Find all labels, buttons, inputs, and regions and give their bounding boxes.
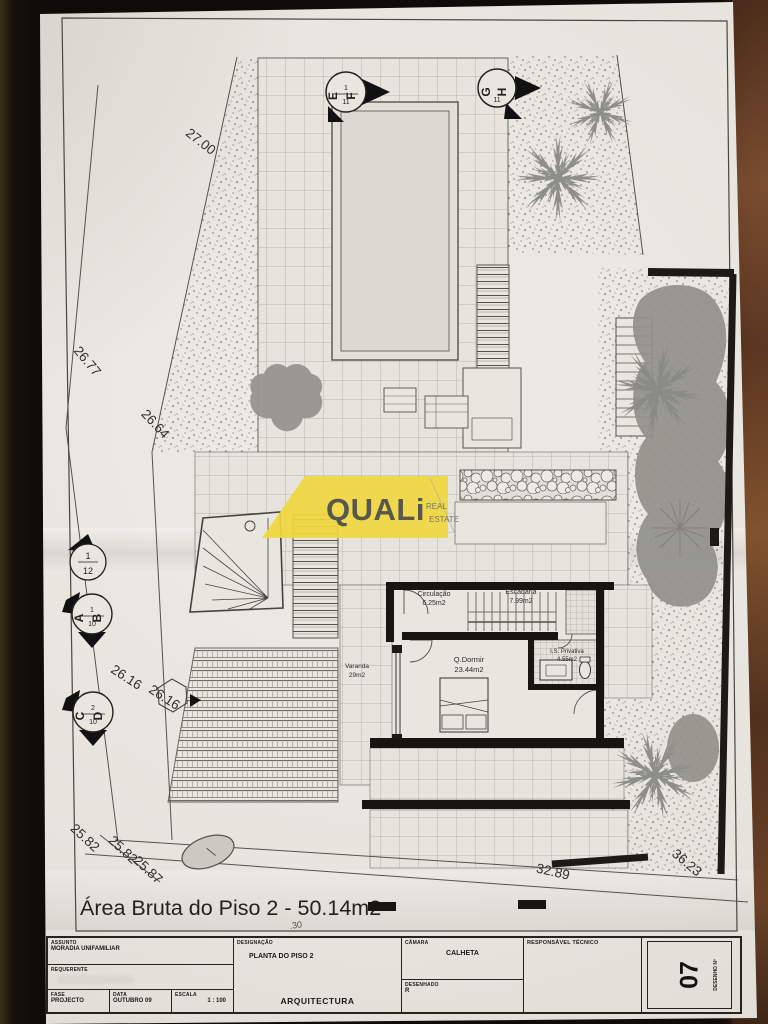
responsavel-cell: RESPONSÁVEL TÉCNICO — [524, 938, 642, 1012]
requerente-label: REQUERENTE — [51, 967, 230, 973]
bottom-annotations: Área Bruta do Piso 2 - 50.14m2 .30 — [80, 895, 546, 931]
quali-logo-sub: ESTATE — [429, 515, 459, 524]
pool-water — [341, 111, 449, 351]
gross-area-note: Área Bruta do Piso 2 - 50.14m2 — [80, 895, 381, 920]
data-cell: DATA OUTUBRO 09 — [110, 990, 172, 1012]
svg-text:E: E — [326, 92, 340, 100]
dimension: 26.16 — [108, 662, 145, 693]
quali-logo-sub: REAL — [426, 502, 447, 511]
room-area: 29m2 — [349, 672, 366, 679]
toilet — [580, 662, 591, 679]
svg-text:1: 1 — [344, 85, 348, 92]
svg-text:11: 11 — [342, 99, 349, 106]
legend-bar — [518, 900, 546, 909]
designacao-value: PLANTA DO PISO 2 — [249, 953, 398, 960]
sink — [540, 660, 572, 680]
escala-cell: ESCALA 1 : 100 — [172, 990, 233, 1012]
svg-text:1: 1 — [90, 607, 94, 614]
quali-logo-text: QUALi — [326, 492, 425, 527]
assunto-cell: ASSUNTO MORADIA UNIFAMILIAR — [48, 938, 233, 965]
svg-text:C: C — [73, 711, 87, 720]
photographed-floor-plan: { "plan": { "area_note": "Área Bruta do … — [0, 0, 768, 1024]
svg-text:1: 1 — [85, 551, 90, 561]
requerente-cell: REQUERENTE — [48, 965, 233, 990]
arquitectura-label: ARQUITECTURA — [234, 996, 401, 1006]
oval-planter — [177, 829, 238, 876]
assunto-value: MORADIA UNIFAMILIAR — [51, 946, 230, 952]
room-area: 6.25m2 — [422, 600, 445, 607]
room-label: I.S. Privativa — [550, 649, 584, 655]
room-label: Varanda — [345, 663, 369, 670]
closet — [566, 590, 598, 634]
room-label: Circulação — [417, 591, 450, 598]
camara-column: CÂMARA CALHETA DESENHADO R — [402, 938, 524, 1012]
svg-text:10: 10 — [89, 719, 97, 726]
camara-cell: CÂMARA CALHETA — [402, 938, 523, 980]
room-label: Q.Dormir — [454, 655, 485, 664]
designacao-cell: DESIGNAÇÃO PLANTA DO PISO 2 ARQUITECTURA — [234, 938, 402, 1012]
pebble-band — [460, 470, 616, 500]
svg-text:11: 11 — [493, 97, 500, 104]
deck-boards — [168, 648, 338, 802]
outdoor-furniture — [384, 388, 416, 412]
svg-text:H: H — [495, 88, 509, 97]
sheet-number-label: DESENHO Nº — [713, 959, 719, 991]
redacted-name — [57, 975, 135, 984]
title-block: ASSUNTO MORADIA UNIFAMILIAR REQUERENTE F… — [46, 936, 742, 1014]
tree-mass — [633, 285, 731, 607]
dimension: 26.77 — [71, 343, 104, 379]
svg-text:A: A — [72, 613, 86, 622]
tree-mass — [667, 714, 719, 782]
svg-text:10: 10 — [88, 621, 96, 628]
section-marker-ab: A B 1 10 — [62, 592, 112, 648]
desenhado-cell: DESENHADO R — [402, 980, 523, 1012]
legend-bar — [368, 902, 396, 911]
dimension: 25.82 — [68, 821, 103, 855]
winder-stair-room — [190, 512, 283, 612]
phase-date-scale-row: FASE PROJECTO DATA OUTUBRO 09 ESCALA 1 :… — [48, 990, 233, 1012]
svg-text:12: 12 — [83, 566, 93, 576]
paper-sheet: QUALi REAL ESTATE Circulação 6.25m2 Esca… — [0, 0, 768, 1024]
designacao-label: DESIGNAÇÃO — [237, 940, 398, 946]
svg-text:2: 2 — [91, 705, 95, 712]
small-dimension-note: .30 — [289, 919, 303, 931]
bed — [440, 678, 488, 732]
title-block-subject-column: ASSUNTO MORADIA UNIFAMILIAR REQUERENTE F… — [48, 938, 234, 1012]
fase-cell: FASE PROJECTO — [48, 990, 110, 1012]
sheet-number-box: 07 DESENHO Nº — [647, 941, 732, 1009]
floor-plan-drawing: QUALi REAL ESTATE Circulação 6.25m2 Esca… — [0, 0, 768, 1024]
sheet-number: 07 — [675, 961, 704, 989]
sheet-number-cell: 07 DESENHO Nº — [642, 938, 740, 1012]
section-marker-12: 1 12 — [68, 534, 106, 580]
svg-text:G: G — [479, 87, 493, 96]
room-area: 7.99m2 — [509, 598, 532, 605]
room-area: 23.44m2 — [454, 665, 483, 674]
dimension: 27.00 — [183, 125, 219, 158]
room-label: Escadaria — [505, 589, 536, 596]
room-area: 4.55m2 — [557, 657, 578, 663]
